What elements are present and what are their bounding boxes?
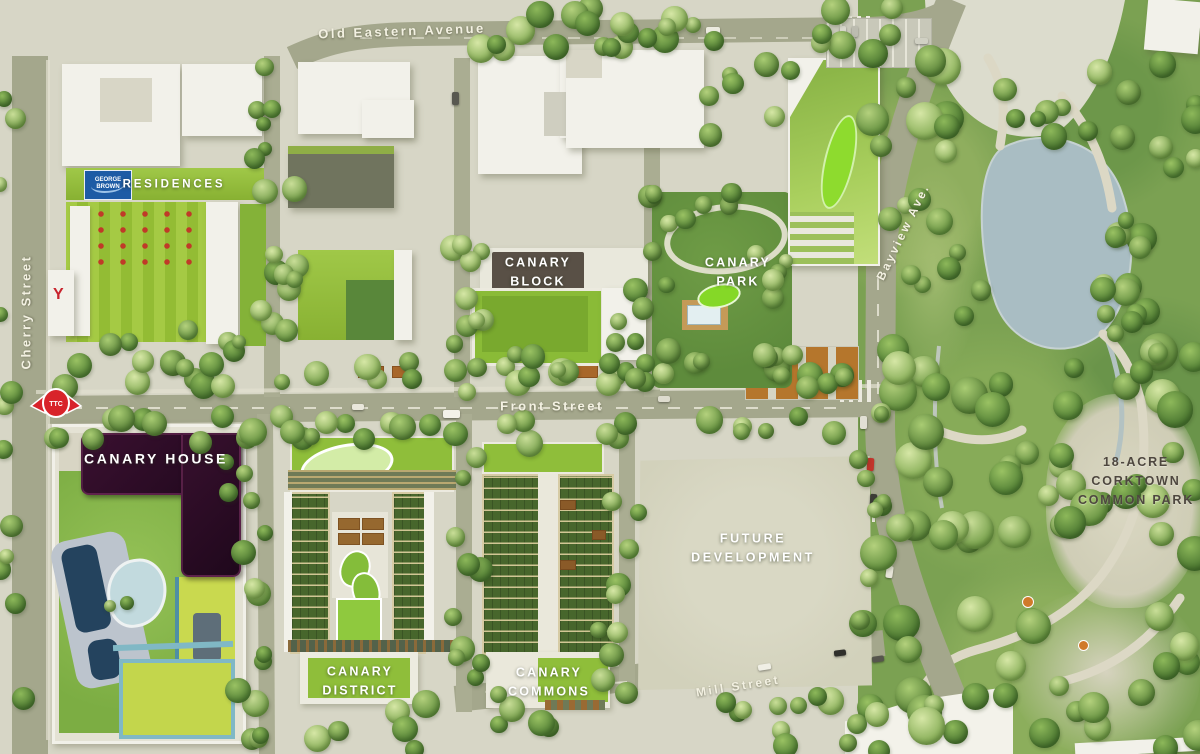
label-line: COMMONS xyxy=(508,682,590,701)
tree xyxy=(1116,80,1142,106)
tree xyxy=(443,422,468,447)
tree xyxy=(734,701,752,719)
tree xyxy=(782,345,802,365)
label-line: FUTURE xyxy=(691,529,815,548)
tree xyxy=(354,354,381,381)
tree xyxy=(263,100,281,118)
tree xyxy=(856,103,889,136)
tree xyxy=(993,78,1017,102)
car xyxy=(443,410,460,418)
tree xyxy=(937,257,961,281)
tree xyxy=(989,461,1023,495)
tree xyxy=(643,242,662,261)
tree xyxy=(1157,391,1194,428)
tree xyxy=(252,727,269,744)
tree xyxy=(722,73,744,95)
tree xyxy=(828,31,856,59)
tree xyxy=(315,411,338,434)
car xyxy=(860,416,867,429)
tree xyxy=(0,549,14,564)
label-line: CANARY xyxy=(322,662,397,681)
white-slab xyxy=(284,492,292,652)
tree xyxy=(225,678,251,704)
ymca-logo: Y xyxy=(53,286,64,304)
tree xyxy=(695,196,713,214)
terrace xyxy=(545,700,605,710)
tree xyxy=(282,176,307,201)
tree xyxy=(1087,59,1113,85)
tree xyxy=(971,280,991,300)
tree xyxy=(0,381,23,404)
tree xyxy=(962,683,989,710)
tree xyxy=(758,423,774,439)
tree xyxy=(599,353,620,374)
tree xyxy=(82,428,104,450)
tree xyxy=(753,343,776,366)
tree xyxy=(256,117,270,131)
tree xyxy=(232,335,246,349)
white-slab xyxy=(206,202,238,344)
tree xyxy=(452,235,473,256)
tree xyxy=(0,515,23,538)
tree xyxy=(699,123,723,147)
tree xyxy=(244,578,265,599)
tree xyxy=(446,527,466,547)
tree xyxy=(303,428,320,445)
planter xyxy=(338,533,360,545)
white-slab xyxy=(424,492,434,652)
courtyard xyxy=(100,78,152,122)
tree xyxy=(120,596,134,610)
label-canary-block: CANARY BLOCK xyxy=(505,253,571,291)
tree xyxy=(1029,718,1059,748)
george-brown-logo-text: GEORGE BROWN xyxy=(91,177,125,193)
tree xyxy=(444,359,467,382)
label-corktown-common: 18-ACRE CORKTOWN COMMON PARK xyxy=(1078,453,1194,509)
tree xyxy=(457,553,480,576)
tree xyxy=(934,114,960,140)
plaza xyxy=(566,50,602,78)
site-plan: GEORGE BROWN Y xyxy=(0,0,1200,754)
tree xyxy=(1064,358,1084,378)
garden-roof-west xyxy=(290,492,330,654)
tree xyxy=(850,611,869,630)
tree xyxy=(265,246,283,264)
tree xyxy=(336,414,355,433)
mews-walk xyxy=(288,470,456,490)
tree xyxy=(602,492,622,512)
tree xyxy=(896,77,916,97)
tree xyxy=(879,24,901,46)
tree xyxy=(754,52,779,77)
tree xyxy=(849,450,868,469)
tree xyxy=(764,106,785,127)
label-future-development: FUTURE DEVELOPMENT xyxy=(691,529,815,567)
tree xyxy=(108,405,135,432)
building xyxy=(1144,0,1200,54)
tree xyxy=(996,651,1027,682)
canary-commons-north-roof xyxy=(482,442,604,474)
tree xyxy=(790,697,807,714)
mews-walk xyxy=(288,640,456,652)
road-marking xyxy=(70,407,840,409)
label-line: BLOCK xyxy=(505,272,571,291)
tree xyxy=(696,406,724,434)
tree xyxy=(1118,212,1134,228)
sport-court xyxy=(193,613,221,661)
george-brown-building-north-east xyxy=(182,64,262,136)
tree xyxy=(1163,157,1184,178)
tree xyxy=(590,622,607,639)
building xyxy=(362,100,414,138)
label-line: CANARY xyxy=(705,253,771,272)
tree xyxy=(250,300,272,322)
tree xyxy=(12,687,35,710)
tree xyxy=(1153,735,1179,754)
tree xyxy=(656,338,681,363)
plunge-pool xyxy=(86,637,122,681)
tree xyxy=(1049,676,1069,696)
tree xyxy=(607,622,628,643)
label-line: CORKTOWN xyxy=(1078,472,1194,491)
lap-pool xyxy=(60,543,113,635)
tree xyxy=(521,344,546,369)
tree xyxy=(49,428,69,448)
car xyxy=(915,38,928,44)
tree xyxy=(1078,121,1098,141)
tree xyxy=(1149,522,1174,547)
playground-equipment xyxy=(1078,640,1089,651)
tree xyxy=(1145,602,1174,631)
white-slab xyxy=(394,250,412,340)
tree xyxy=(883,605,919,641)
tree xyxy=(923,467,953,497)
tree xyxy=(5,593,26,614)
tree xyxy=(638,28,658,48)
tree xyxy=(808,687,827,706)
tree xyxy=(915,45,946,76)
planter xyxy=(560,500,576,510)
tree xyxy=(405,740,424,754)
label-residences: RESIDENCES xyxy=(123,176,226,193)
tree xyxy=(653,363,674,384)
tree xyxy=(599,643,624,668)
tree xyxy=(1153,652,1181,680)
tree xyxy=(1148,343,1168,363)
tree xyxy=(497,414,516,433)
tree xyxy=(1121,311,1143,333)
tree xyxy=(591,668,615,692)
tree xyxy=(704,31,724,51)
tree xyxy=(935,140,957,162)
tree xyxy=(1053,391,1083,421)
tree xyxy=(487,35,506,54)
tree xyxy=(1149,51,1176,78)
tree xyxy=(929,520,959,550)
car xyxy=(452,92,459,105)
label-line: CANARY xyxy=(508,663,590,682)
street-label-cherry: Cherry Street xyxy=(19,255,34,370)
tree xyxy=(901,265,921,285)
tree xyxy=(874,406,890,422)
planter xyxy=(362,533,384,545)
tree xyxy=(412,690,440,718)
tree xyxy=(176,359,194,377)
tree xyxy=(211,374,235,398)
tree xyxy=(1129,236,1152,259)
car xyxy=(352,404,364,410)
label-canary-district: CANARY DISTRICT xyxy=(322,662,397,700)
tree xyxy=(882,351,916,385)
tree xyxy=(943,720,968,745)
tree xyxy=(870,135,892,157)
garden-roof-east xyxy=(392,492,426,654)
terrace xyxy=(790,212,854,264)
label-canary-house: CANARY HOUSE xyxy=(84,449,228,470)
tree xyxy=(490,686,507,703)
south-lawn xyxy=(119,659,235,739)
roof-spine xyxy=(538,474,558,652)
tree xyxy=(528,710,554,736)
tree xyxy=(796,376,819,399)
tree xyxy=(822,421,846,445)
label-line: CANARY xyxy=(505,253,571,272)
checkerboard-red-units xyxy=(90,206,202,272)
tree xyxy=(693,353,710,370)
tree xyxy=(472,654,490,672)
tree xyxy=(1105,226,1126,247)
tree xyxy=(389,414,416,441)
label-canary-park: CANARY PARK xyxy=(705,253,771,291)
planter xyxy=(560,560,576,570)
tree xyxy=(1149,136,1173,160)
tree xyxy=(467,358,486,377)
tree xyxy=(67,353,92,378)
tree xyxy=(632,297,654,319)
planter xyxy=(592,530,606,540)
tree xyxy=(773,733,798,754)
tree xyxy=(645,185,662,202)
tree xyxy=(526,1,554,29)
tree xyxy=(275,319,298,342)
tree xyxy=(998,516,1030,548)
label-line: COMMON PARK xyxy=(1078,490,1194,509)
label-line: PARK xyxy=(705,272,771,291)
tree xyxy=(219,483,238,502)
label-line: DEVELOPMENT xyxy=(691,548,815,567)
tree xyxy=(699,86,719,106)
tree xyxy=(1090,277,1115,302)
tree xyxy=(125,369,150,394)
planter xyxy=(362,518,384,530)
tree xyxy=(627,333,644,350)
tree xyxy=(615,682,637,704)
label-canary-commons: CANARY COMMONS xyxy=(508,663,590,701)
tree xyxy=(353,428,375,450)
tree xyxy=(908,707,945,744)
tree xyxy=(625,368,646,389)
planter xyxy=(338,518,360,530)
tree xyxy=(239,418,267,446)
tree xyxy=(1107,325,1124,342)
label-line: 18-ACRE xyxy=(1078,453,1194,472)
tree xyxy=(256,646,273,663)
street-label-front: Front Street xyxy=(500,399,604,414)
ttc-logo: TTC xyxy=(28,386,84,420)
playground-equipment xyxy=(1022,596,1034,608)
tree xyxy=(243,492,260,509)
tree xyxy=(255,58,273,76)
dark-green-roof xyxy=(346,280,394,340)
tree xyxy=(304,361,329,386)
tree xyxy=(328,721,348,741)
tree xyxy=(839,734,857,752)
tree xyxy=(812,24,832,44)
tree xyxy=(446,335,464,353)
dark-roof-building xyxy=(288,146,394,208)
tree xyxy=(132,350,155,373)
tree xyxy=(1097,305,1115,323)
tree xyxy=(236,465,253,482)
tree xyxy=(257,525,273,541)
car xyxy=(658,396,670,402)
svg-text:TTC: TTC xyxy=(49,401,63,408)
canary-house-site xyxy=(52,424,246,744)
tree xyxy=(199,352,224,377)
tree xyxy=(773,367,790,384)
tree xyxy=(860,569,878,587)
tree xyxy=(1186,149,1200,169)
tree xyxy=(1054,506,1086,538)
tree xyxy=(886,514,914,542)
tree xyxy=(211,405,235,429)
label-line: DISTRICT xyxy=(322,681,397,700)
tree xyxy=(402,369,422,389)
